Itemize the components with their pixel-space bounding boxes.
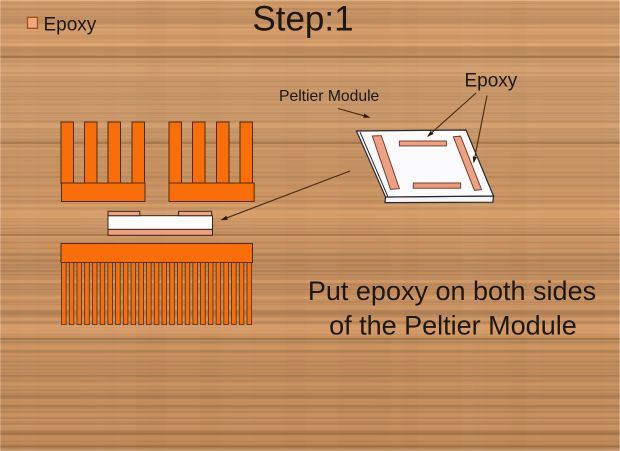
svg-text:Epoxy: Epoxy bbox=[465, 71, 518, 92]
svg-text:Step:1: Step:1 bbox=[252, 0, 353, 38]
svg-text:of the Peltier Module: of the Peltier Module bbox=[329, 310, 577, 340]
svg-text:Put epoxy on both sides: Put epoxy on both sides bbox=[308, 276, 596, 306]
svg-text:Epoxy: Epoxy bbox=[44, 15, 97, 36]
svg-text:Peltier Module: Peltier Module bbox=[279, 88, 380, 105]
